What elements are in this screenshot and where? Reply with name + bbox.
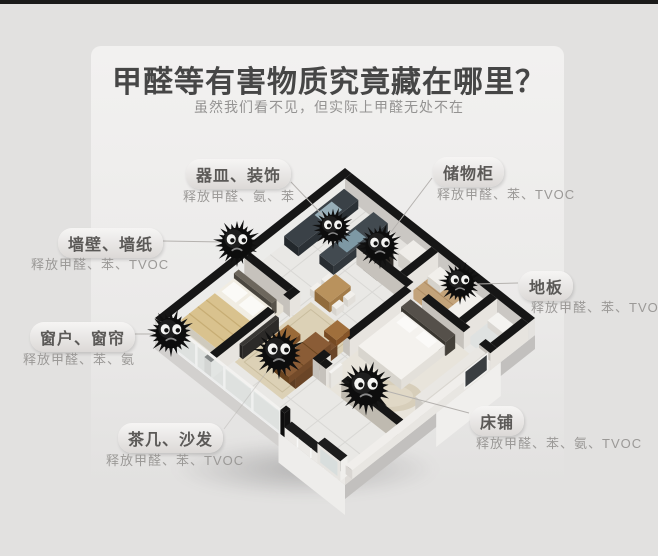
release-text-cabinet: 释放甲醛、苯、TVOC bbox=[437, 184, 575, 203]
release-text-vessels: 释放甲醛、氨、苯 bbox=[183, 186, 295, 205]
label-pill-cabinet: 储物柜 bbox=[433, 157, 504, 187]
release-text-floor: 释放甲醛、苯、TVOC bbox=[531, 297, 658, 316]
release-text-window: 释放甲醛、苯、氨 bbox=[23, 349, 135, 368]
release-text-bed: 释放甲醛、苯、氨、TVOC bbox=[476, 433, 642, 452]
label-pill-vessels: 器皿、装饰 bbox=[186, 159, 291, 189]
release-text-sofa: 释放甲醛、苯、TVOC bbox=[106, 450, 244, 469]
leader-line bbox=[163, 241, 224, 242]
label-pill-sofa: 茶几、沙发 bbox=[118, 423, 223, 453]
label-pill-bed: 床铺 bbox=[470, 406, 524, 436]
release-text-wall: 释放甲醛、苯、TVOC bbox=[31, 254, 169, 273]
label-pill-window: 窗户、窗帘 bbox=[30, 322, 135, 352]
